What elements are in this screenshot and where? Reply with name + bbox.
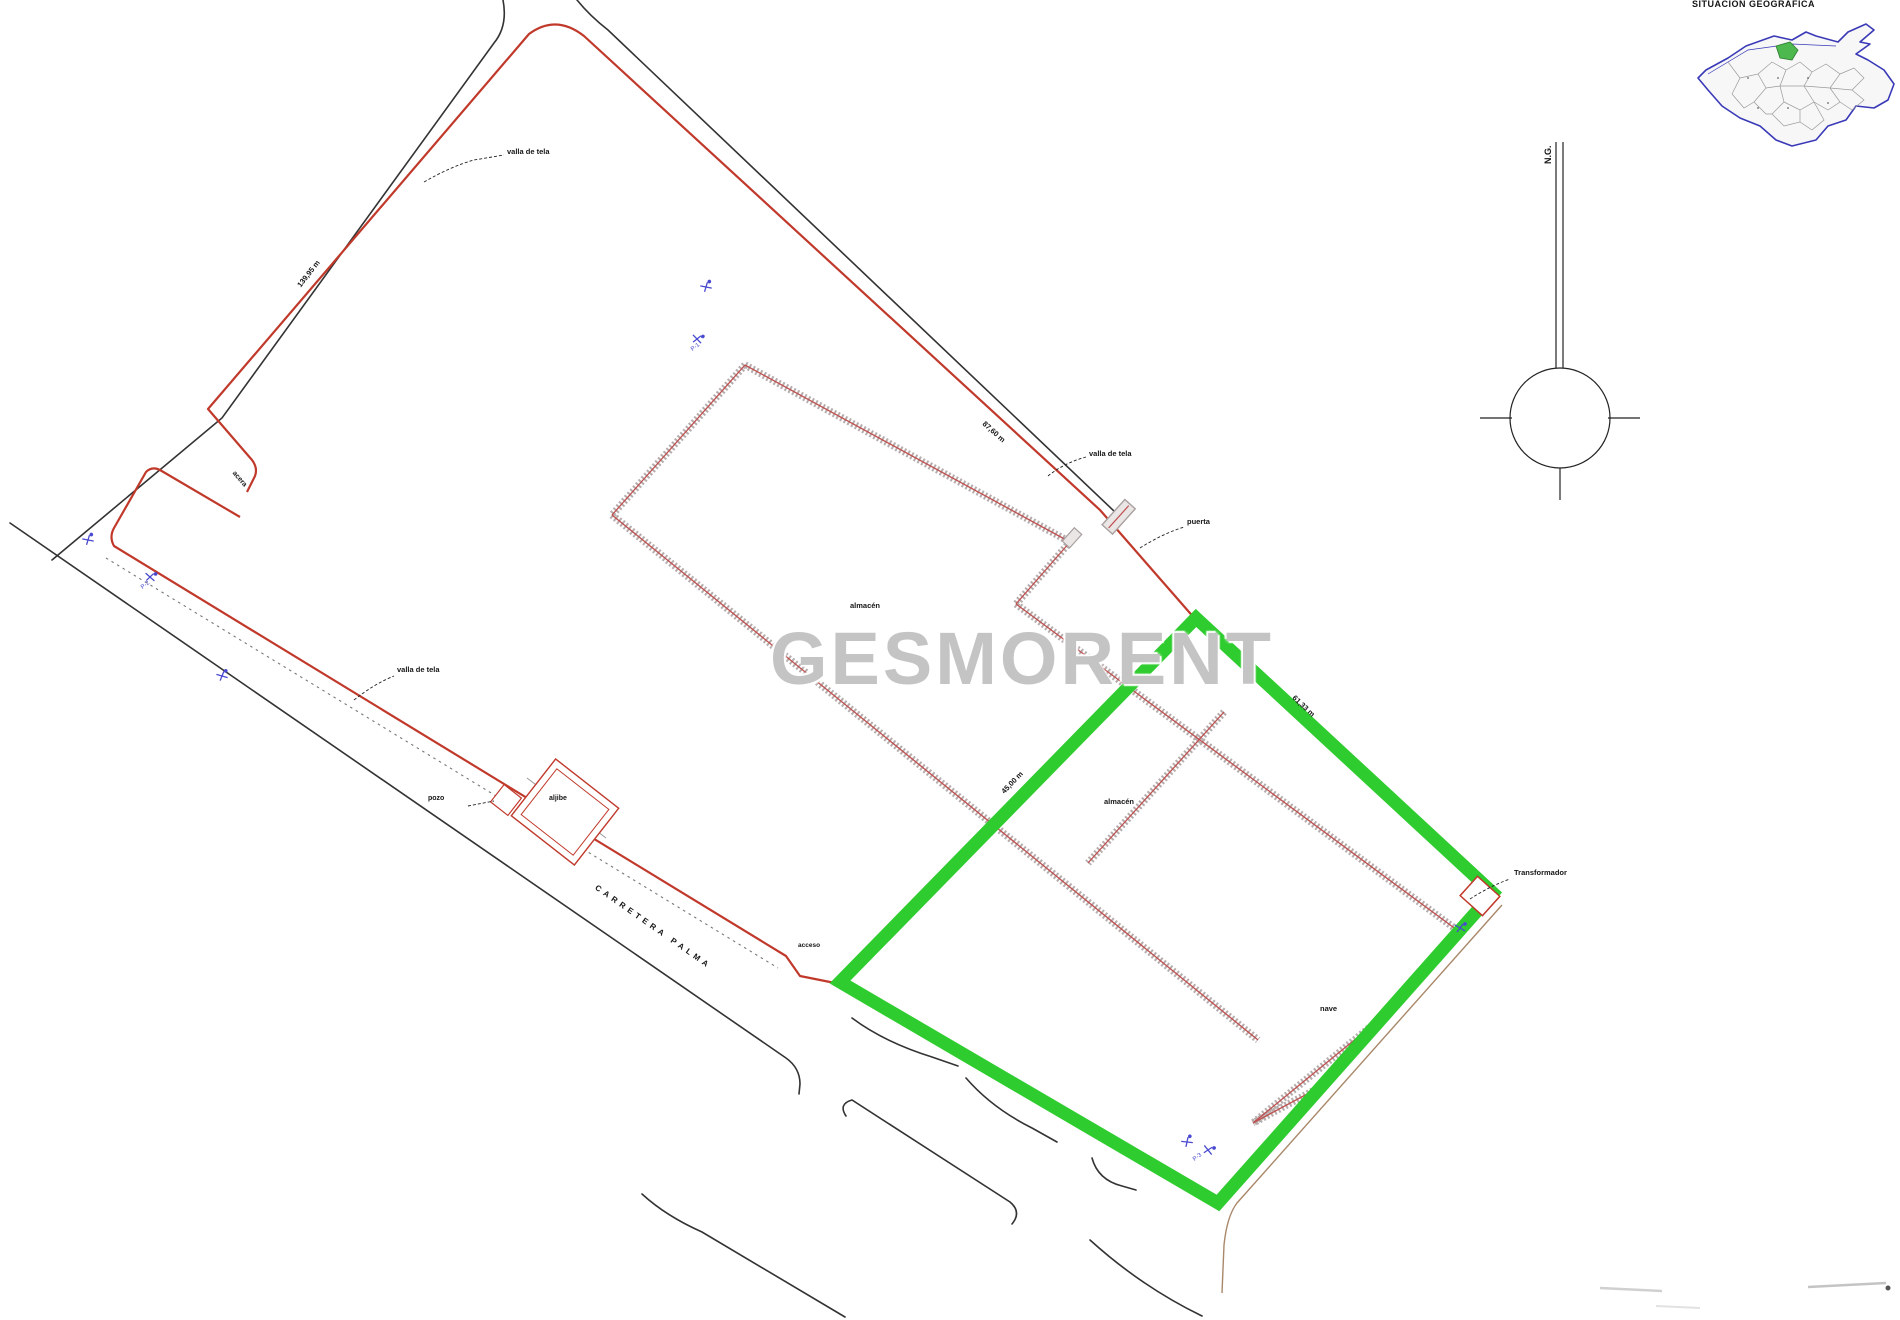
- survey-marker: [1202, 1143, 1216, 1155]
- island-outline: [1698, 24, 1894, 146]
- gate-label: puerta: [1187, 518, 1210, 526]
- watermark: GESMORENT: [770, 616, 1274, 701]
- fence-dashed-line: [106, 558, 778, 968]
- survey-marker: [216, 669, 229, 681]
- street-edge-left: [52, 0, 504, 560]
- road-edge-long: [10, 523, 800, 1094]
- fence-label-1: valla de tela: [507, 148, 550, 156]
- fence-label-2: valla de tela: [1089, 450, 1132, 458]
- road-kerb-6: [642, 1194, 845, 1317]
- survey-marker: [700, 280, 714, 292]
- transformer-label: Transformador: [1514, 869, 1567, 877]
- hall-a-label: almacén: [850, 602, 880, 610]
- road-edge-tan: [1222, 905, 1502, 1293]
- hall-c-label: nave: [1320, 1005, 1337, 1013]
- survey-markers-layer: [82, 280, 1467, 1156]
- transformer-plot: [1460, 876, 1500, 915]
- map-title: SITUACIÓN GEOGRÁFICA: [1692, 0, 1815, 9]
- scan-artifacts: [1600, 1283, 1891, 1308]
- cistern-building: [511, 759, 618, 865]
- hall-b-label: almacén: [1104, 798, 1134, 806]
- road-kerb-5: [1090, 1240, 1202, 1316]
- highlighted-parcel-outline: [840, 618, 1493, 1203]
- north-label: N.G.: [1544, 145, 1553, 164]
- leader-lines: [354, 155, 1510, 899]
- site-plan-page: GESMORENT SITUACIÓN GEOGRÁFICAN.G.valla …: [0, 0, 1900, 1320]
- survey-marker: [82, 533, 96, 545]
- access-label: acceso: [798, 943, 820, 950]
- parcel-boundary: [112, 24, 1197, 984]
- road-kerb-1: [843, 1100, 1016, 1224]
- well-label: pozo: [428, 795, 444, 802]
- locator-map: [1698, 24, 1894, 146]
- parcel-boundary-lower: [112, 468, 841, 984]
- north-arrow: [1480, 142, 1640, 500]
- survey-marker: [1180, 1135, 1194, 1148]
- fence-label-3: valla de tela: [397, 666, 440, 674]
- street-edge-right: [577, 0, 1115, 512]
- road-kerb-4: [1092, 1158, 1136, 1190]
- cistern-label: aljibe: [549, 795, 567, 802]
- north-arrow-circle: [1510, 368, 1610, 468]
